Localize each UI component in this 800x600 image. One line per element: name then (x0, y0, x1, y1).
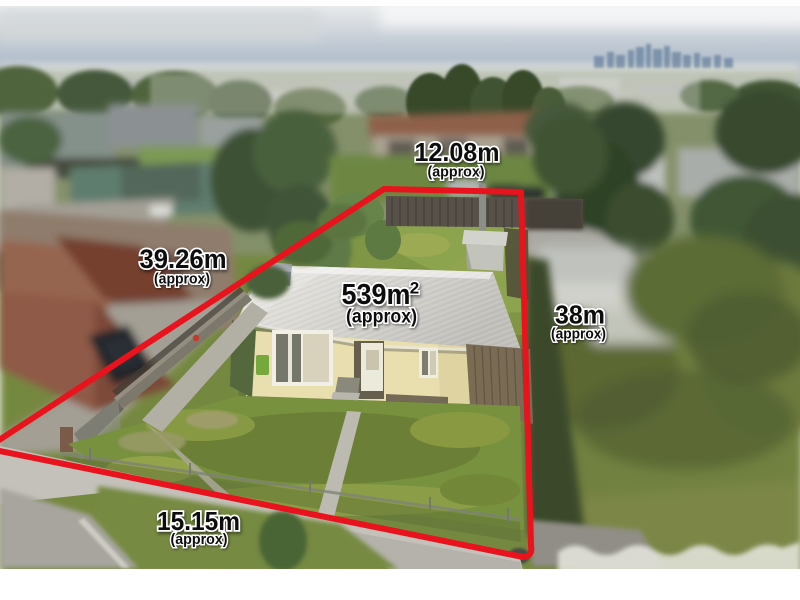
svg-text:39.26m: 39.26m (140, 244, 227, 274)
svg-text:(approx): (approx) (551, 326, 606, 343)
svg-text:(approx): (approx) (154, 271, 210, 288)
svg-text:(approx): (approx) (428, 164, 485, 181)
svg-text:(approx): (approx) (346, 307, 417, 328)
svg-text:2: 2 (410, 279, 419, 298)
svg-text:12.08m: 12.08m (415, 137, 500, 167)
svg-text:(approx): (approx) (171, 531, 228, 548)
